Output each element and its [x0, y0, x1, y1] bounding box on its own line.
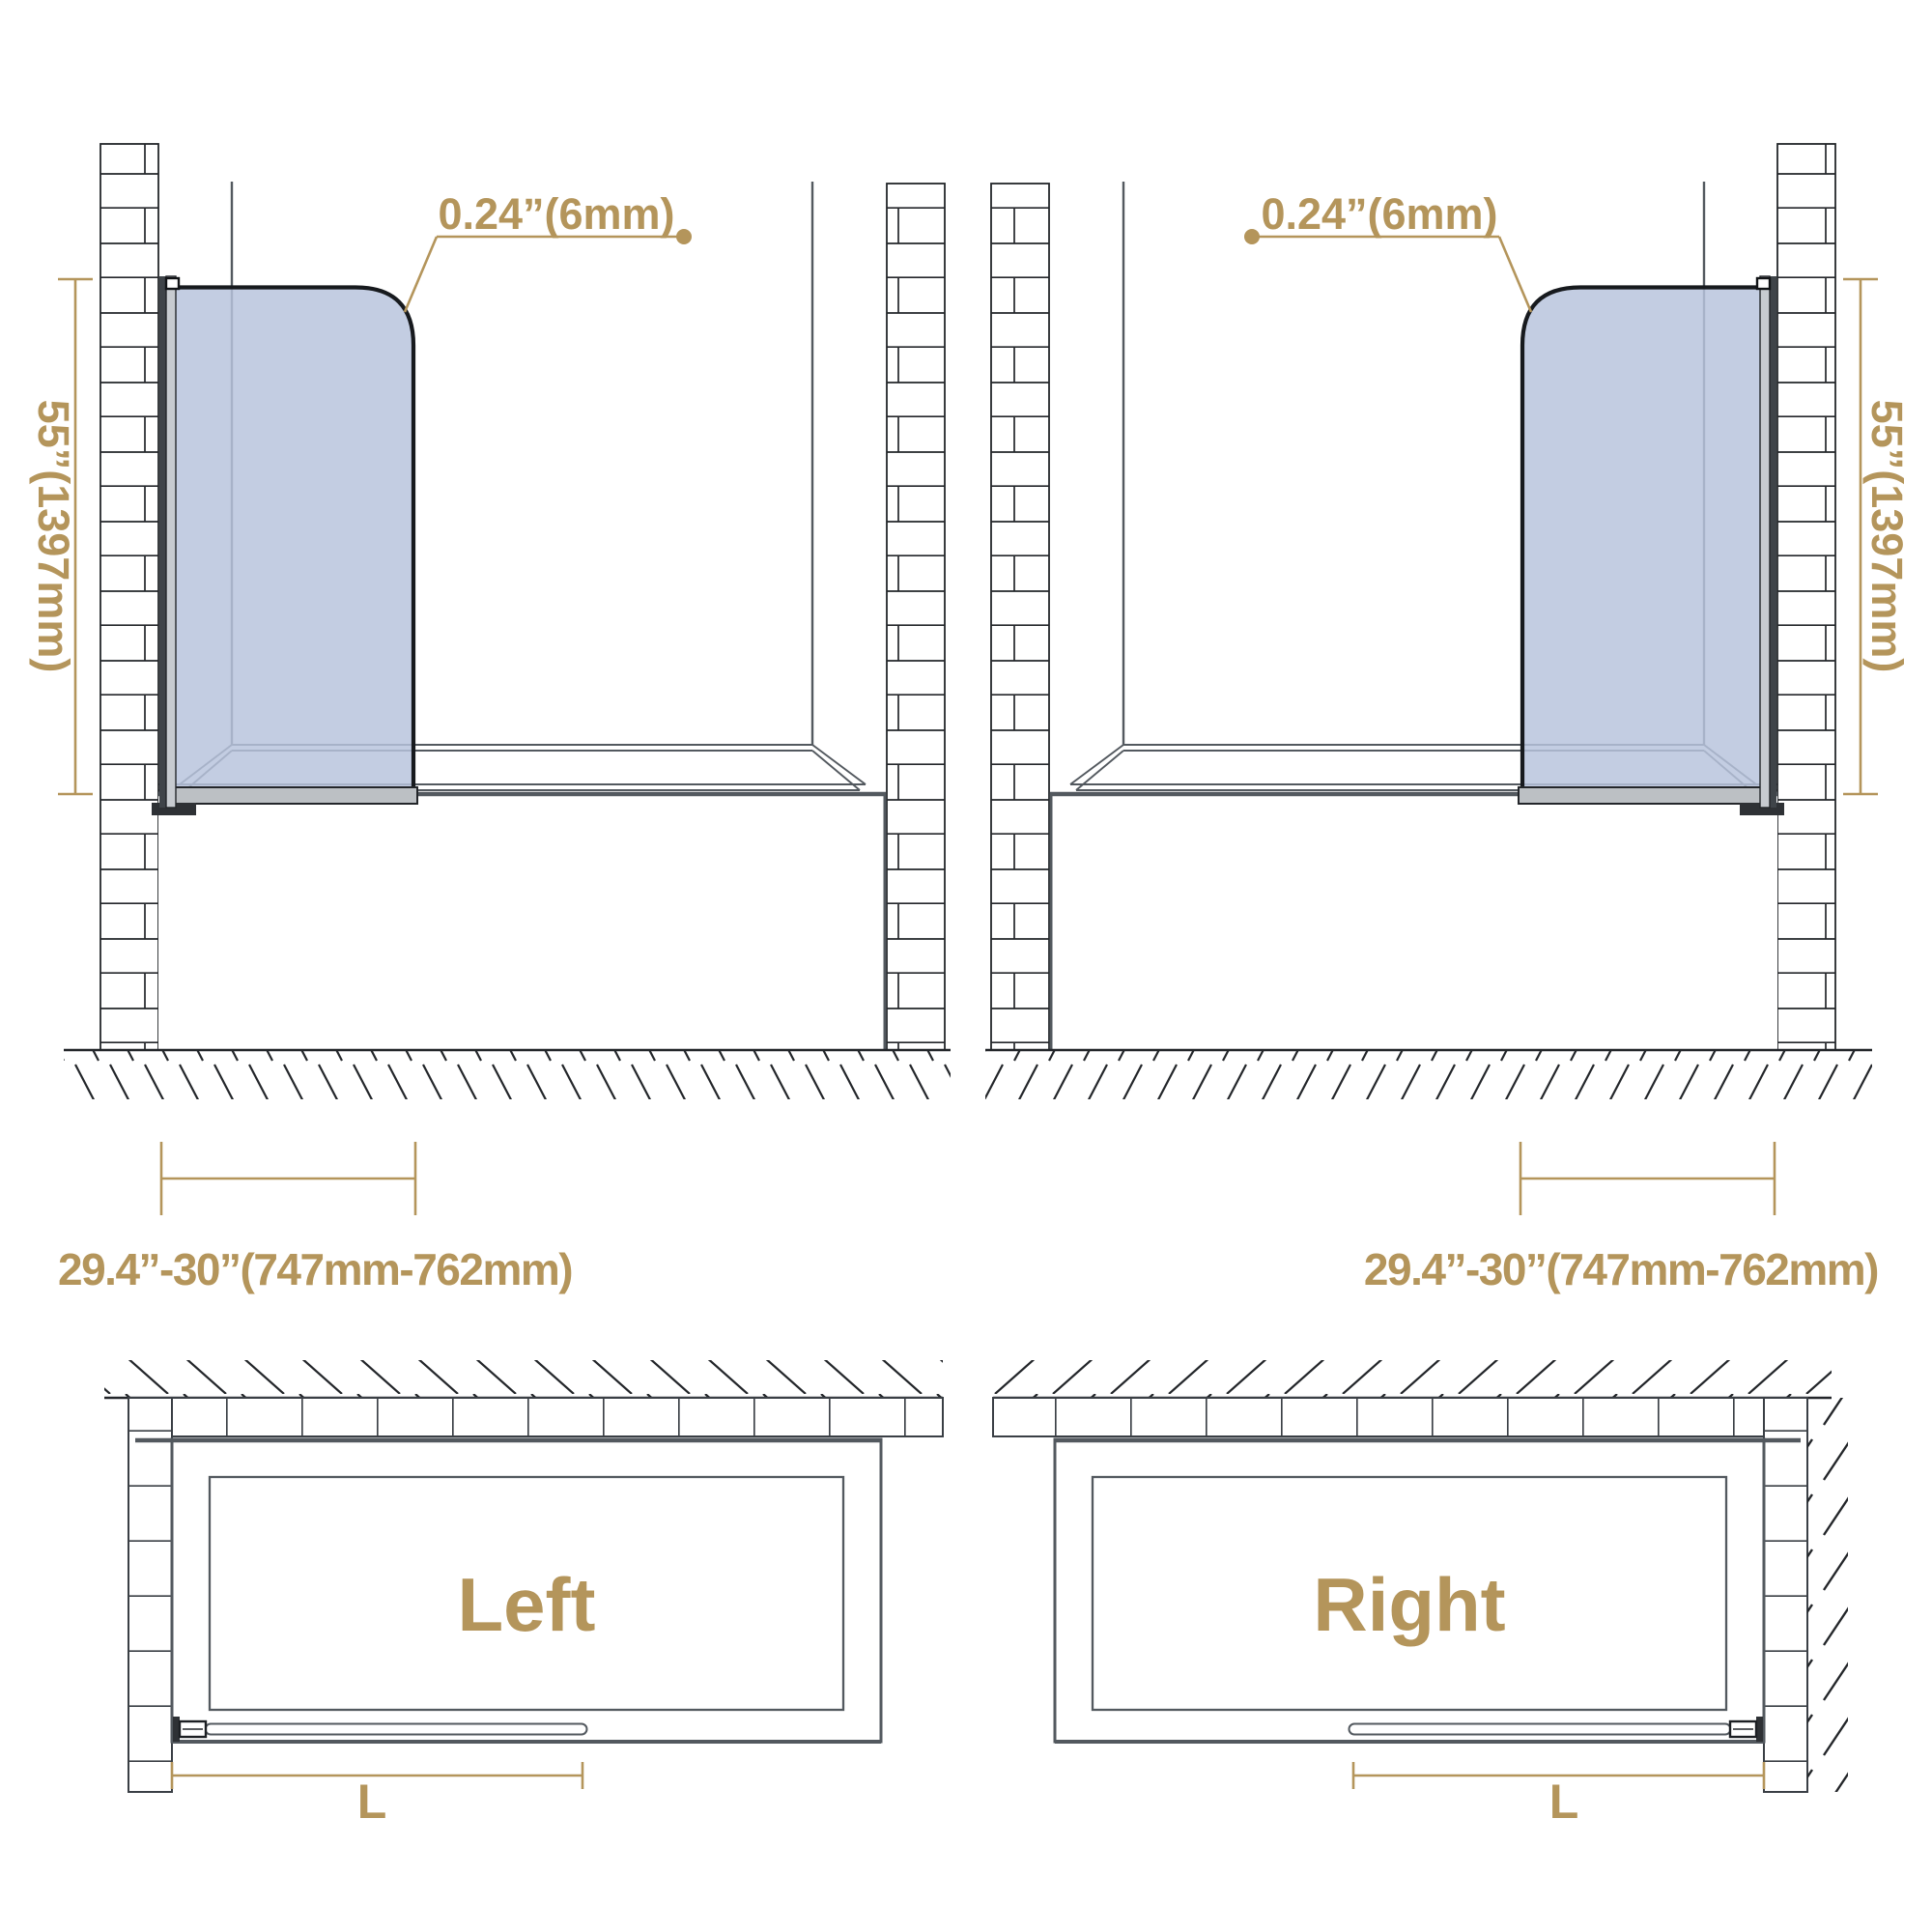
glass-panel: [1519, 276, 1784, 815]
bathtub: [1050, 794, 1777, 1050]
side-wall: [128, 1398, 172, 1792]
side-wall: [1764, 1398, 1848, 1792]
top-wall: [104, 1360, 943, 1436]
plan-view-right: L Right: [993, 1360, 1848, 1829]
width-dimension: 29.4”-30”(747mm-762mm): [58, 1142, 572, 1294]
door-blade: [1350, 1724, 1731, 1735]
height-label: 55”(1397mm): [29, 400, 78, 673]
glass-bottom-seal: [170, 787, 417, 804]
height-dimension: 55”(1397mm): [1843, 279, 1912, 794]
thickness-callout: 0.24”(6mm): [1244, 189, 1531, 312]
glass-thickness-label: 0.24”(6mm): [1261, 189, 1497, 239]
length-label: L: [357, 1775, 387, 1829]
side-wall-hatch: [1807, 1398, 1848, 1792]
top-bracket: [166, 278, 179, 289]
width-dimension: 29.4”-30”(747mm-762mm): [1364, 1142, 1878, 1294]
top-wall: [993, 1360, 1832, 1436]
glass-thickness-label: 0.24”(6mm): [438, 189, 674, 239]
wall-profile-outer: [1770, 276, 1776, 808]
door-blade: [206, 1724, 587, 1735]
brick-wall-left: [100, 144, 158, 1050]
height-dimension: 55”(1397mm): [29, 279, 93, 794]
diagram-canvas: 0.24”(6mm) 55”(1397mm) 29.4”-30”(747mm-7…: [0, 0, 1932, 1932]
glass-bottom-seal: [1519, 787, 1766, 804]
callout-dot: [1244, 229, 1260, 244]
floor: [64, 1050, 951, 1099]
height-label: 55”(1397mm): [1862, 400, 1912, 673]
wall-profile-inner: [1760, 276, 1770, 808]
side-view-left: 0.24”(6mm) 55”(1397mm) 29.4”-30”(747mm-7…: [29, 144, 951, 1294]
brick-wall-right: [887, 184, 945, 1050]
plan-view-left: L Left: [104, 1360, 943, 1829]
width-label: 29.4”-30”(747mm-762mm): [1364, 1244, 1878, 1294]
floor: [985, 1050, 1872, 1099]
installation-diagram-page: 0.24”(6mm) 55”(1397mm) 29.4”-30”(747mm-7…: [0, 0, 1932, 1932]
length-dimension: L: [1353, 1762, 1764, 1829]
brick-wall-right: [1777, 144, 1835, 1050]
wall-profile-outer: [159, 276, 166, 808]
plan-title: Right: [1313, 1562, 1505, 1647]
length-dimension: L: [172, 1762, 582, 1829]
brick-wall-left: [991, 184, 1049, 1050]
glass-panel: [152, 276, 417, 815]
plan-title: Left: [458, 1562, 596, 1647]
thickness-callout: 0.24”(6mm): [405, 189, 692, 312]
width-label: 29.4”-30”(747mm-762mm): [58, 1244, 572, 1294]
wall-profile-inner: [166, 276, 176, 808]
callout-dot: [676, 229, 692, 244]
side-view-right: 0.24”(6mm) 55”(1397mm) 29.4”-30”(747mm-7…: [985, 144, 1912, 1294]
top-bracket: [1757, 278, 1770, 289]
length-label: L: [1549, 1775, 1579, 1829]
bathtub: [158, 794, 886, 1050]
